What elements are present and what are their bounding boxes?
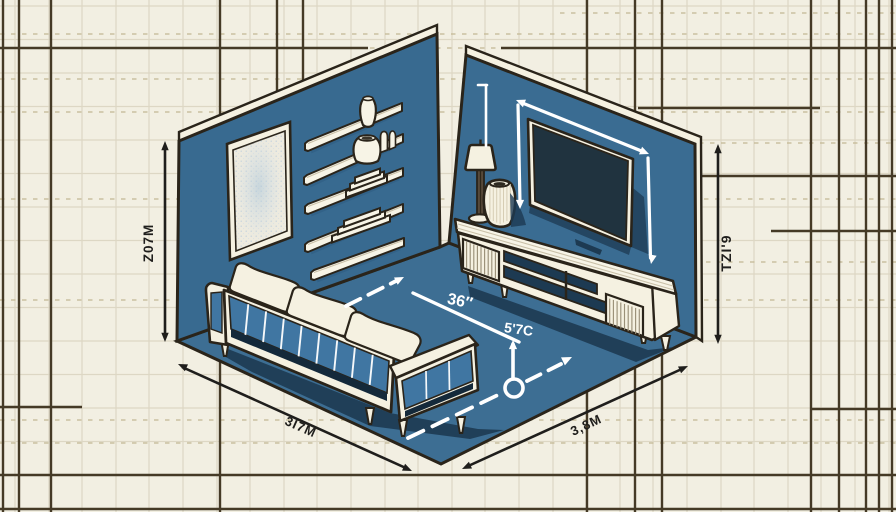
svg-text:Z07M: Z07M [141, 224, 156, 263]
svg-text:TZIʹ9: TZIʹ9 [718, 234, 734, 271]
